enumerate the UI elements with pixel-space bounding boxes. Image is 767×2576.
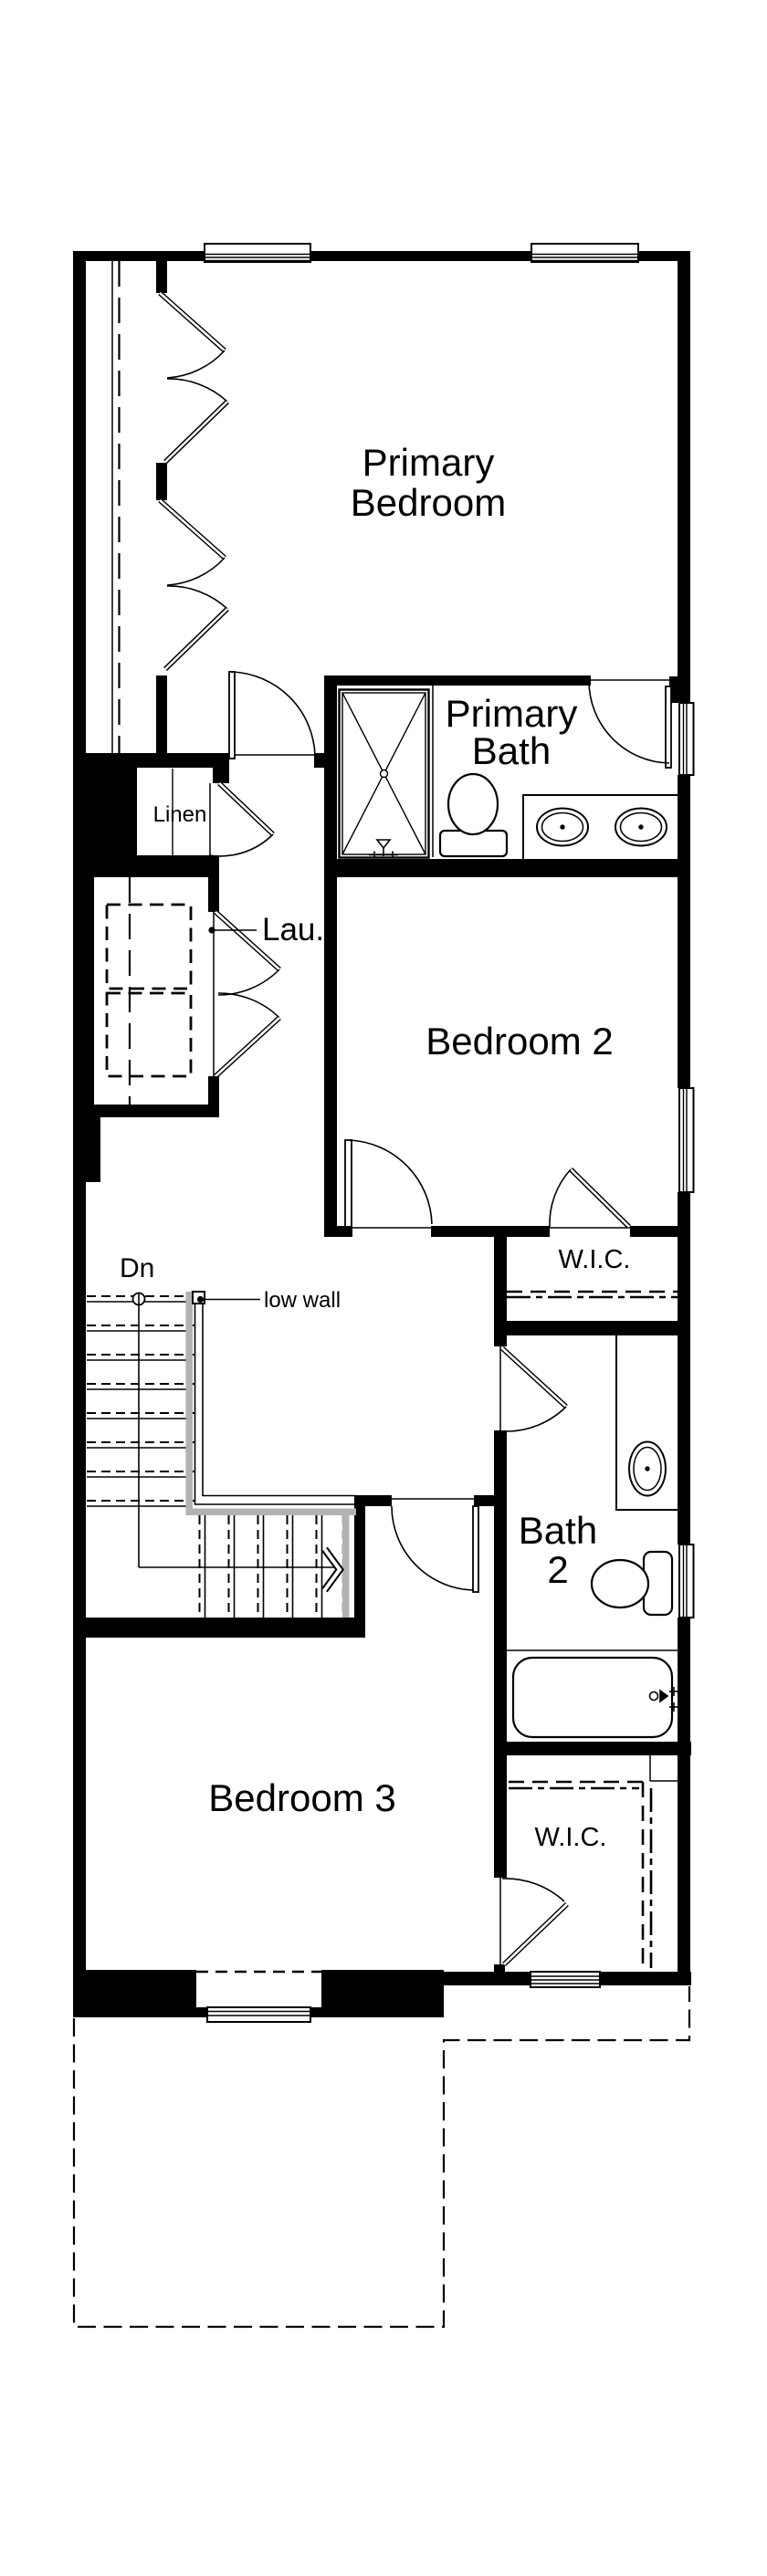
svg-text:Primary: Primary [446, 692, 578, 735]
svg-text:Bedroom 2: Bedroom 2 [426, 1020, 613, 1063]
svg-text:Primary: Primary [362, 441, 495, 484]
svg-text:Bedroom 3: Bedroom 3 [208, 1776, 395, 1819]
svg-text:W.I.C.: W.I.C. [535, 1823, 607, 1852]
svg-text:W.I.C.: W.I.C. [559, 1245, 631, 1274]
svg-text:Lau.: Lau. [262, 912, 324, 948]
svg-text:Dn: Dn [120, 1253, 154, 1283]
svg-text:2: 2 [547, 1548, 568, 1591]
svg-text:Bath: Bath [472, 729, 551, 772]
svg-text:low wall: low wall [264, 1288, 341, 1313]
svg-text:Linen: Linen [153, 802, 207, 827]
svg-text:Bedroom: Bedroom [351, 481, 506, 524]
svg-text:Bath: Bath [519, 1509, 597, 1552]
